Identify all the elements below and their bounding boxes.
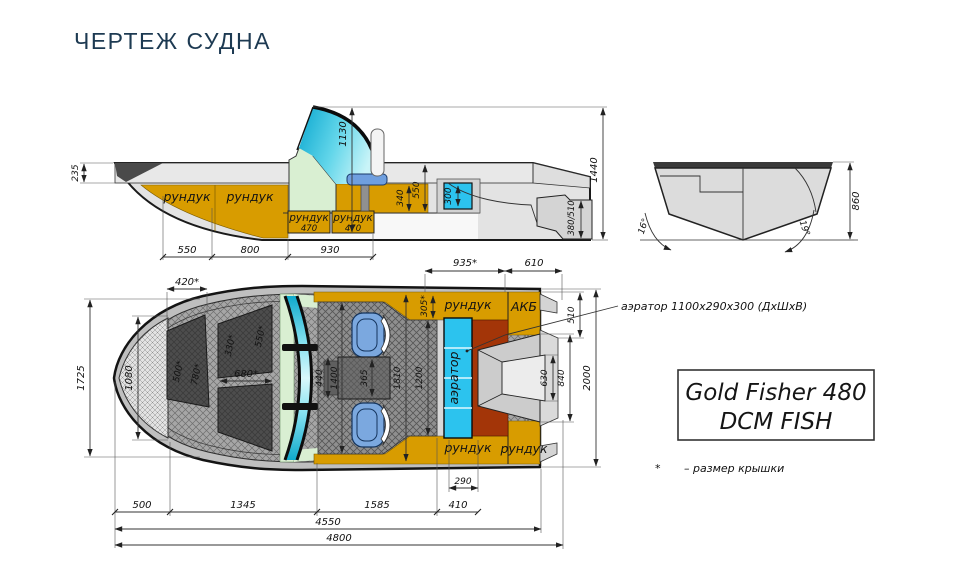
brand-plate: Gold Fisher 480 DCM FISH — [678, 370, 874, 440]
dim-440: 440 — [315, 369, 325, 386]
bow-hatch-left — [167, 315, 209, 407]
dim-800: 800 — [240, 245, 259, 256]
dim-860: 860 — [851, 191, 862, 210]
boat-drawing: рундук 470 рундук 470 рундук рундук 235 — [0, 0, 978, 586]
helm-pedestal — [361, 184, 369, 211]
dim-510: 510 — [567, 306, 577, 323]
dim-1585: 1585 — [364, 500, 389, 511]
dim-420: 420* — [175, 277, 199, 288]
dim-4550: 4550 — [315, 517, 340, 528]
dim-1345: 1345 — [230, 500, 255, 511]
dim-1400: 1400 — [330, 366, 340, 389]
dim-340: 340 — [396, 189, 406, 206]
brand-line-2: DCM FISH — [720, 409, 833, 435]
dim-235: 235 — [71, 164, 81, 181]
stern-locker-top-label: рундук — [443, 297, 492, 312]
transom-view: 16° 19° 860 — [637, 162, 862, 252]
dim-305: 305* — [420, 295, 430, 317]
dim-500: 500 — [132, 500, 151, 511]
dim-380-510: 380/510 — [567, 200, 577, 235]
dim-610: 610 — [524, 258, 543, 269]
stern-locker-bottom-right-label: рундук — [499, 441, 548, 456]
helm-seat-backrest — [371, 129, 384, 176]
dim-4800: 4800 — [326, 533, 351, 544]
battery-label: АКБ — [510, 299, 537, 314]
livewell-label: аэратор — [446, 351, 461, 404]
seat-passenger — [352, 403, 390, 447]
dim-410: 410 — [448, 500, 467, 511]
side-view: рундук 470 рундук 470 рундук рундук 235 — [71, 107, 608, 260]
dim-365: 365 — [360, 369, 370, 386]
top-view: аэратор — [76, 258, 601, 549]
underseat-locker-2-label: рундук — [332, 212, 373, 224]
dim-1440: 1440 — [589, 157, 600, 182]
dim-1200: 1200 — [415, 366, 425, 389]
footnote: * – размер крышки — [655, 462, 784, 475]
dim-935: 935* — [453, 258, 477, 269]
dim-290: 290 — [454, 477, 471, 487]
underseat-locker-2: рундук 470 — [332, 211, 374, 234]
dim-1080: 1080 — [124, 365, 135, 390]
transom-gunwale — [653, 162, 833, 168]
dim-16deg: 16° — [637, 217, 651, 235]
dim-930: 930 — [320, 245, 339, 256]
drawing-page: ЧЕРТЕЖ СУДНА — [0, 0, 978, 586]
footnote-text: – размер крышки — [684, 462, 784, 475]
underseat-locker-1-size: 470 — [301, 224, 317, 234]
aerator-note-text: аэратор 1100х290х300 (ДхШхВ) — [621, 300, 807, 313]
dim-2000: 2000 — [582, 365, 593, 390]
underseat-locker-1: рундук 470 — [288, 211, 330, 234]
livewell-plan: аэратор — [444, 318, 472, 438]
seat-driver — [352, 313, 390, 357]
bow-locker-label-1: рундук — [162, 189, 211, 204]
dim-1130: 1130 — [338, 121, 349, 146]
dim-300: 300 — [444, 187, 454, 204]
stern-locker-bottom-left-label: рундук — [443, 440, 492, 455]
dim-840: 840 — [557, 369, 567, 386]
dim-1810: 1810 — [393, 366, 403, 389]
underseat-locker-2-size: 470 — [345, 224, 361, 234]
dim-630: 630 — [540, 369, 550, 386]
dim-1725: 1725 — [76, 365, 87, 390]
underseat-locker-1-label: рундук — [288, 212, 329, 224]
dim-19deg: 19° — [797, 219, 811, 237]
brand-line-1: Gold Fisher 480 — [685, 380, 866, 406]
walkthrough-bar-top — [282, 344, 318, 351]
dim-550-side: 550 — [412, 181, 422, 198]
dim-550-bottom: 550 — [177, 245, 196, 256]
footnote-marker: * — [655, 462, 661, 475]
dim-680: 680* — [234, 369, 258, 380]
walkthrough-bar-bottom — [282, 403, 318, 410]
bow-locker-label-2: рундук — [225, 189, 274, 204]
